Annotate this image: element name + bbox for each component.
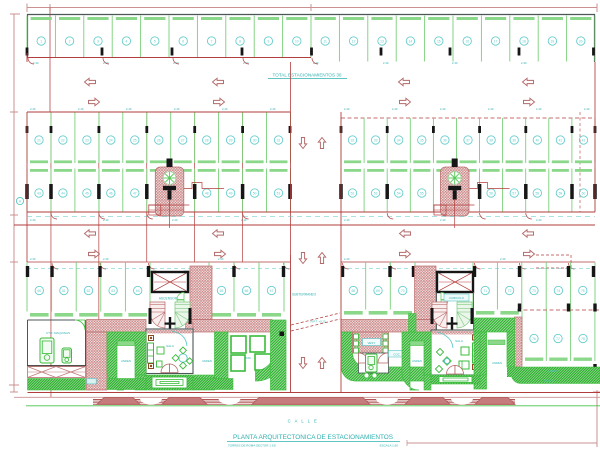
svg-text:15: 15 [437, 39, 441, 43]
svg-text:52: 52 [351, 191, 355, 195]
svg-text:BOD.: BOD. [245, 356, 252, 360]
svg-text:6: 6 [182, 39, 184, 43]
svg-text:12: 12 [352, 39, 356, 43]
svg-text:32: 32 [351, 138, 355, 142]
svg-text:64: 64 [136, 289, 140, 293]
svg-text:2.40: 2.40 [500, 257, 506, 261]
svg-text:SALA: SALA [166, 344, 174, 348]
svg-text:77: 77 [556, 337, 560, 341]
svg-text:36: 36 [443, 138, 447, 142]
svg-text:2.40: 2.40 [103, 218, 109, 222]
svg-text:5: 5 [154, 39, 156, 43]
svg-text:2.40: 2.40 [172, 218, 178, 222]
svg-text:2.40: 2.40 [241, 218, 247, 222]
svg-text:TOTAL ESTACIONAMIENTOS 30: TOTAL ESTACIONAMIENTOS 30 [273, 73, 342, 78]
svg-text:74: 74 [557, 289, 561, 293]
svg-text:ANDEN: ANDEN [202, 359, 212, 363]
svg-text:21: 21 [37, 138, 41, 142]
svg-text:23: 23 [85, 138, 89, 142]
svg-text:48: 48 [205, 191, 209, 195]
svg-text:14: 14 [409, 39, 413, 43]
svg-text:78: 78 [581, 337, 585, 341]
svg-text:45: 45 [85, 191, 89, 195]
svg-text:76: 76 [532, 337, 536, 341]
svg-text:43: 43 [37, 191, 41, 195]
svg-text:31: 31 [277, 138, 281, 142]
svg-text:38: 38 [489, 138, 493, 142]
svg-text:54: 54 [397, 191, 401, 195]
svg-text:30: 30 [253, 138, 257, 142]
svg-text:ASCENSOR: ASCENSOR [159, 296, 178, 300]
svg-text:ANDEN: ANDEN [492, 361, 502, 365]
svg-text:TORRES DE ROMA SECTOR 1 SS: TORRES DE ROMA SECTOR 1 SS [228, 444, 276, 448]
svg-text:39: 39 [512, 138, 516, 142]
svg-text:PLANTA ARQUITECTONICA DE ESTAC: PLANTA ARQUITECTONICA DE ESTACIONAMIENTO… [233, 434, 393, 441]
svg-text:62: 62 [87, 289, 91, 293]
svg-text:66: 66 [245, 289, 249, 293]
svg-text:71: 71 [483, 289, 487, 293]
svg-text:4: 4 [125, 39, 127, 43]
svg-text:63: 63 [111, 289, 115, 293]
svg-text:ESCALA 1:50: ESCALA 1:50 [380, 444, 399, 448]
svg-text:70: 70 [401, 289, 405, 293]
svg-text:2.40: 2.40 [126, 107, 132, 111]
svg-text:49: 49 [229, 191, 233, 195]
svg-text:CTO. MAQUINAS: CTO. MAQUINAS [46, 331, 70, 335]
svg-text:33: 33 [374, 138, 378, 142]
svg-text:3: 3 [97, 39, 99, 43]
svg-text:56: 56 [489, 191, 493, 195]
svg-text:2.40: 2.40 [488, 107, 494, 111]
svg-text:61: 61 [62, 289, 66, 293]
svg-text:57: 57 [512, 191, 516, 195]
svg-text:16: 16 [465, 39, 469, 43]
svg-text:ANDEN: ANDEN [121, 359, 131, 363]
svg-text:2.40: 2.40 [174, 107, 180, 111]
svg-text:2.40: 2.40 [78, 107, 84, 111]
svg-text:29: 29 [229, 138, 233, 142]
svg-text:1: 1 [40, 39, 42, 43]
svg-text:73: 73 [532, 289, 536, 293]
svg-text:67: 67 [270, 289, 274, 293]
svg-text:9: 9 [267, 39, 269, 43]
svg-text:42: 42 [582, 138, 586, 142]
svg-text:2.40: 2.40 [440, 107, 446, 111]
svg-text:COC.: COC. [393, 353, 400, 357]
svg-text:58: 58 [535, 191, 539, 195]
svg-text:18: 18 [522, 39, 526, 43]
svg-text:60: 60 [582, 191, 586, 195]
svg-text:46: 46 [109, 191, 113, 195]
svg-text:2.40: 2.40 [344, 107, 350, 111]
svg-text:34: 34 [397, 138, 401, 142]
svg-text:2.40: 2.40 [536, 218, 542, 222]
svg-text:35: 35 [420, 138, 424, 142]
svg-text:75: 75 [581, 289, 585, 293]
svg-text:50: 50 [253, 191, 257, 195]
svg-text:SUBTERRANEO: SUBTERRANEO [292, 293, 317, 297]
svg-text:VEST.: VEST. [367, 341, 375, 345]
svg-text:20: 20 [579, 39, 583, 43]
svg-text:72: 72 [508, 289, 512, 293]
svg-text:65: 65 [220, 289, 224, 293]
svg-text:2.40: 2.40 [313, 61, 319, 65]
svg-text:CUBICULO: CUBICULO [449, 296, 465, 300]
svg-text:2.40: 2.40 [536, 107, 542, 111]
svg-text:37: 37 [466, 138, 470, 142]
svg-text:2.40: 2.40 [103, 257, 109, 261]
svg-text:28: 28 [205, 138, 209, 142]
svg-text:2.40: 2.40 [452, 61, 458, 65]
svg-text:26: 26 [157, 138, 161, 142]
svg-text:ANDEN: ANDEN [543, 379, 553, 383]
svg-text:60: 60 [37, 289, 41, 293]
svg-text:2.40: 2.40 [344, 257, 350, 261]
svg-text:17: 17 [494, 39, 498, 43]
svg-text:59: 59 [559, 191, 563, 195]
svg-text:11: 11 [323, 39, 327, 43]
svg-text:2.40: 2.40 [30, 218, 36, 222]
svg-text:27: 27 [181, 138, 185, 142]
svg-text:2.40: 2.40 [270, 107, 276, 111]
svg-text:51: 51 [277, 191, 281, 195]
svg-text:25: 25 [133, 138, 137, 142]
svg-text:2.40: 2.40 [521, 61, 527, 65]
svg-text:47: 47 [133, 191, 137, 195]
svg-text:2.40: 2.40 [30, 107, 36, 111]
svg-text:41: 41 [559, 138, 563, 142]
svg-text:68: 68 [351, 289, 355, 293]
svg-text:44: 44 [61, 191, 65, 195]
svg-text:55: 55 [420, 191, 424, 195]
svg-text:C A L L E: C A L L E [288, 419, 319, 424]
svg-text:SALA: SALA [455, 339, 463, 343]
svg-text:8: 8 [239, 39, 241, 43]
svg-text:7: 7 [211, 39, 213, 43]
svg-text:ANDEN: ANDEN [412, 359, 422, 363]
svg-text:53: 53 [374, 191, 378, 195]
svg-text:2.40: 2.40 [30, 257, 36, 261]
svg-text:13: 13 [380, 39, 384, 43]
svg-text:69: 69 [376, 289, 380, 293]
svg-text:2.40: 2.40 [584, 107, 590, 111]
svg-text:2.40: 2.40 [383, 61, 389, 65]
svg-text:2: 2 [69, 39, 71, 43]
svg-text:ANDEN: ANDEN [548, 369, 558, 373]
svg-text:22: 22 [61, 138, 65, 142]
svg-text:2.40: 2.40 [33, 61, 39, 65]
svg-text:24: 24 [109, 138, 113, 142]
svg-text:10: 10 [295, 39, 299, 43]
svg-text:2.40: 2.40 [440, 218, 446, 222]
svg-text:2.40: 2.40 [222, 107, 228, 111]
svg-text:40: 40 [535, 138, 539, 142]
svg-text:19: 19 [551, 39, 555, 43]
svg-text:2.40: 2.40 [218, 257, 224, 261]
svg-text:N.P.T. +0.15: N.P.T. +0.15 [310, 320, 326, 324]
svg-text:2.40: 2.40 [344, 218, 350, 222]
svg-text:2.40: 2.40 [392, 107, 398, 111]
